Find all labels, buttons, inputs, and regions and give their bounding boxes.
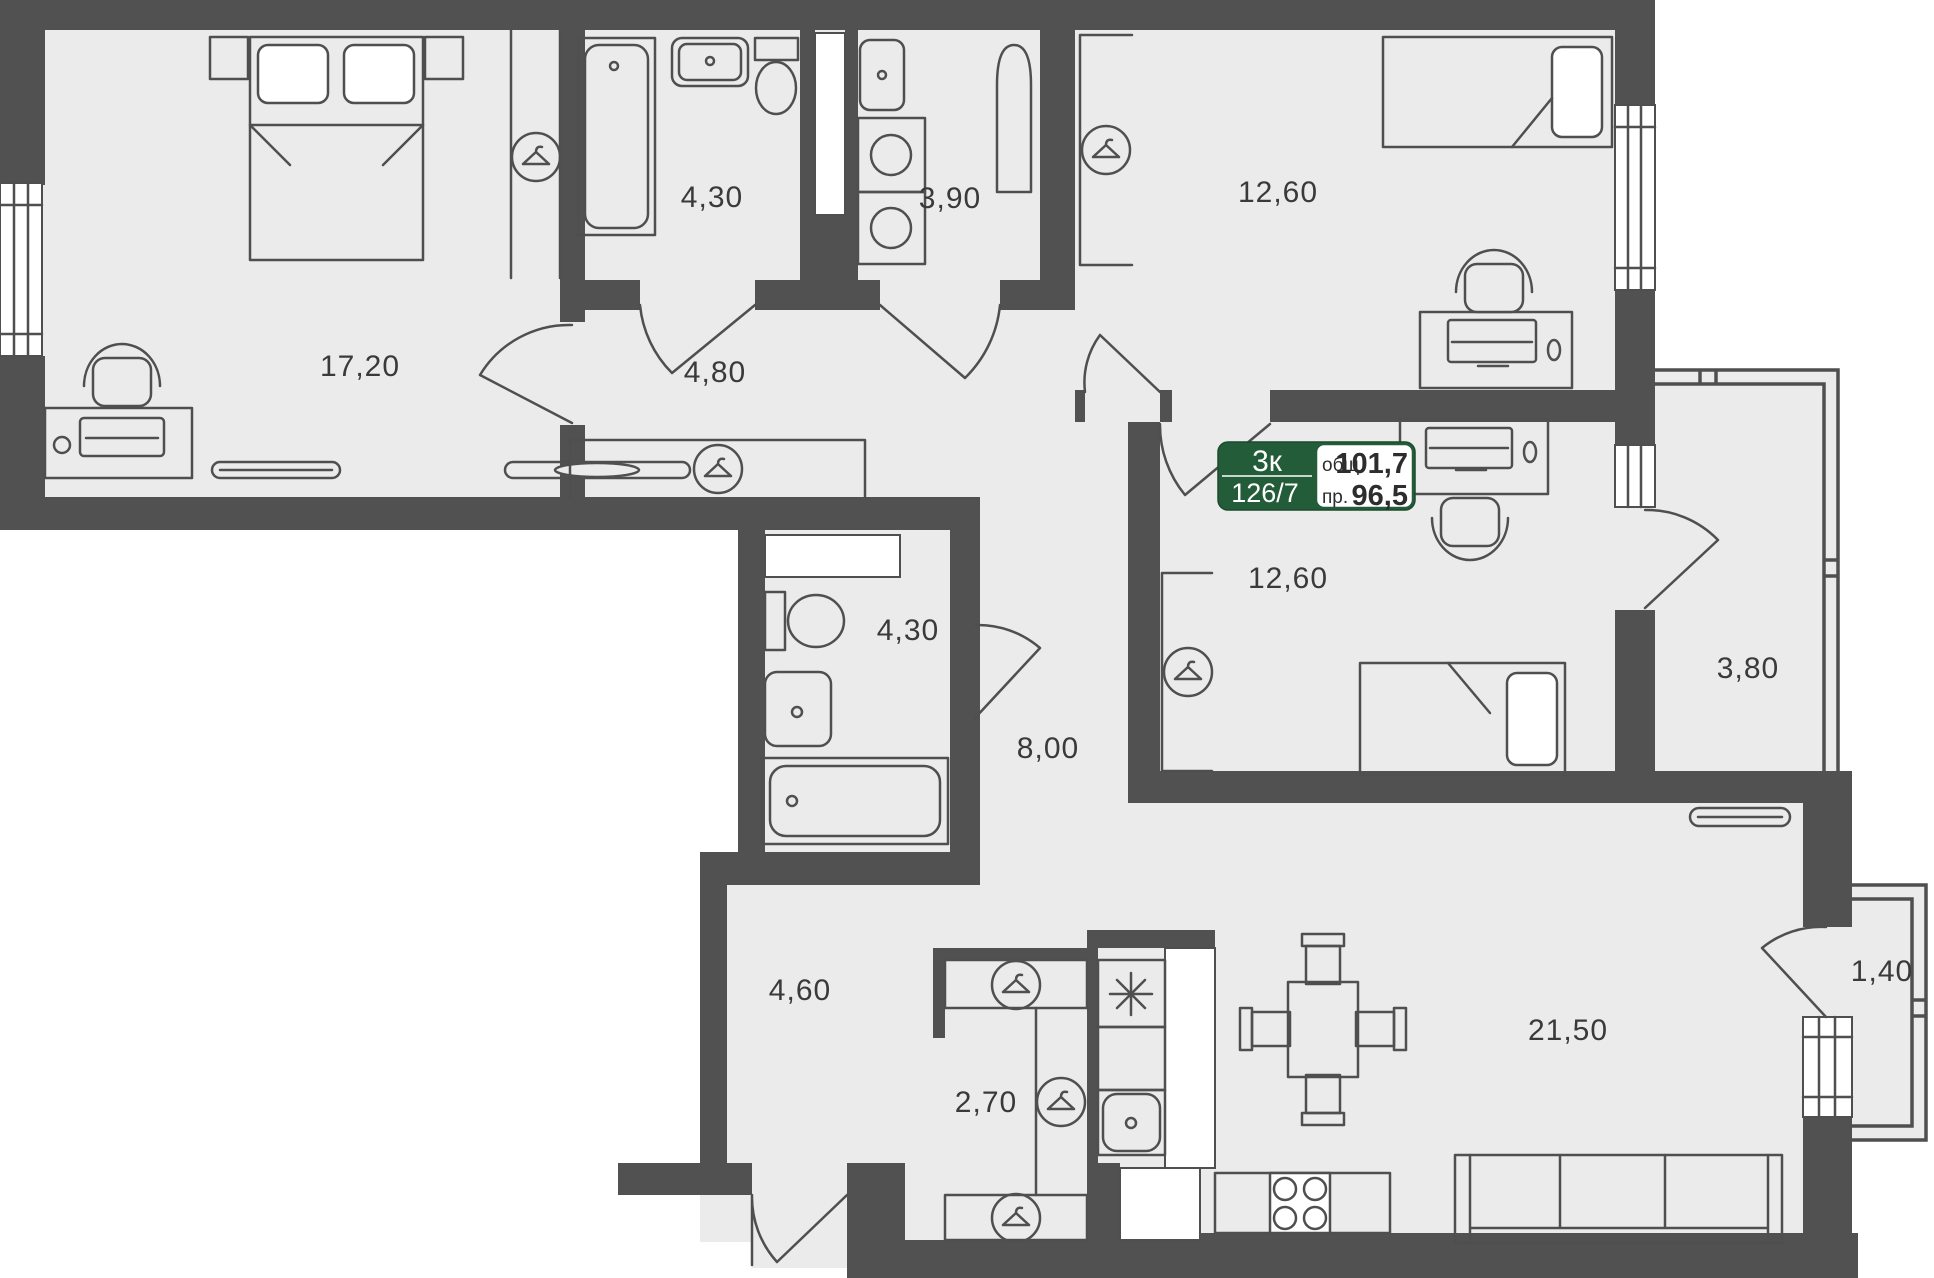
shaft-bathroom [765, 535, 900, 577]
pillow [344, 45, 414, 103]
wall-laundry-right [1040, 30, 1075, 310]
wall-laundry-left [845, 30, 858, 280]
window-bedroom-main [0, 183, 42, 356]
wall-wardrobe-top [933, 948, 1087, 960]
wall-kitchen-cells-top [1087, 930, 1215, 948]
floor-balcony [1852, 885, 1926, 1140]
room-label-balcony: 1,40 [1851, 955, 1913, 988]
wall-right-mid [1615, 610, 1655, 771]
apartment-badge: 3к 126/7 общ. 101,7 пр. 96,5 [1218, 442, 1415, 512]
room-label-entry-hall: 4,60 [769, 974, 831, 1007]
wall-bottom-left-band [905, 1240, 1215, 1278]
room-label-bedroom-main: 17,20 [320, 350, 400, 383]
wall-hall-left [700, 885, 727, 1195]
wall-right-upper-b [1615, 290, 1655, 445]
badge-living-label: пр. [1322, 487, 1348, 508]
window-bedroom-middle [1615, 445, 1655, 507]
room-label-wardrobe: 2,70 [955, 1086, 1017, 1119]
pillow [1507, 673, 1557, 765]
floor-loggia [1655, 370, 1838, 771]
floor-plan-drawing: 17,20 4,30 3,90 12,60 4,80 12,60 3,80 4,… [0, 0, 1934, 1278]
wall-bedrooms-band-b [1270, 390, 1655, 422]
wall-bedroom-main-right-upper [560, 30, 585, 322]
wall-wardrobe-left-stub [933, 948, 945, 1038]
wall-shaft-side [1098, 1163, 1120, 1240]
badge-living-value: 96,5 [1352, 480, 1408, 512]
wall-kitchen-cells-left [1087, 948, 1098, 1240]
wall-entry-left [618, 1163, 752, 1195]
room-label-kitchen-living: 21,50 [1528, 1014, 1608, 1047]
wall-bathroom-right [950, 530, 980, 852]
wall-laundry-bottom [1000, 280, 1075, 310]
wall-bedrooms-band-a [1075, 390, 1085, 422]
wall-living-right-lower [1803, 1117, 1852, 1278]
stove [1270, 1173, 1330, 1233]
room-label-laundry: 3,90 [919, 182, 981, 215]
pillow [258, 45, 328, 103]
wall-bathroom-bottom [700, 852, 980, 885]
pillow [1552, 47, 1602, 137]
wall-bedrooms-band-stub [1160, 390, 1172, 422]
room-label-bedroom-top-right: 12,60 [1238, 176, 1318, 209]
wall-left-upper [0, 0, 45, 185]
wall-shower-bottom-b [755, 280, 880, 310]
wall-top [0, 0, 1655, 30]
window-kitchen-living [1803, 1017, 1852, 1117]
room-label-corridor: 8,00 [1017, 732, 1079, 765]
floor-plan-page: 17,20 4,30 3,90 12,60 4,80 12,60 3,80 4,… [0, 0, 1934, 1278]
room-label-shower-room: 4,30 [681, 181, 743, 214]
badge-total-value: 101,7 [1335, 448, 1408, 480]
wall-entry-right-block [847, 1163, 905, 1278]
wall-living-right-upper [1803, 803, 1852, 927]
floor-kitchen-living [1128, 803, 1852, 1240]
window-bedroom-top-right [1615, 105, 1655, 290]
room-label-bathroom: 4,30 [877, 614, 939, 647]
room-label-loggia: 3,80 [1717, 652, 1779, 685]
wall-shower-right [800, 30, 815, 280]
shaft-kitchen [1165, 948, 1215, 1168]
room-label-hall-top: 4,80 [684, 356, 746, 389]
wall-right-upper-a [1615, 0, 1655, 105]
wall-bottom-main [1200, 1233, 1858, 1278]
eight-point-asterisk-icon [1110, 973, 1152, 1015]
shaft-bottom [1120, 1168, 1200, 1240]
wall-shower-bottom-a [585, 280, 640, 310]
room-label-bedroom-middle: 12,60 [1248, 562, 1328, 595]
floor-entry-nook [752, 1195, 847, 1268]
wall-shaft-fill [815, 215, 845, 280]
wall-bedroom-middle-left [1128, 422, 1160, 771]
badge-type: 3к [1252, 445, 1283, 478]
wall-bedroom-main-bottom [0, 497, 980, 530]
badge-number: 126/7 [1231, 478, 1299, 508]
shaft-top [815, 33, 845, 215]
